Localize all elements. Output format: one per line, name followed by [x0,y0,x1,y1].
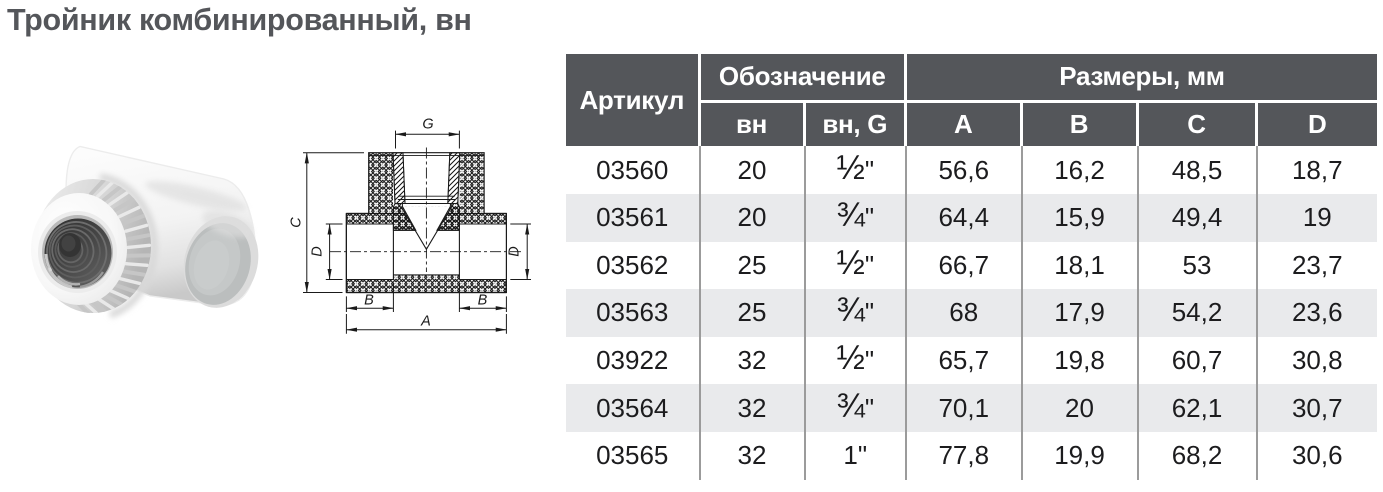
svg-text:A: A [420,314,431,330]
svg-text:C: C [288,217,304,228]
svg-text:D: D [507,246,523,256]
svg-text:G: G [422,117,433,133]
svg-text:B: B [478,293,488,309]
svg-text:D: D [310,246,326,256]
svg-text:B: B [364,293,374,309]
